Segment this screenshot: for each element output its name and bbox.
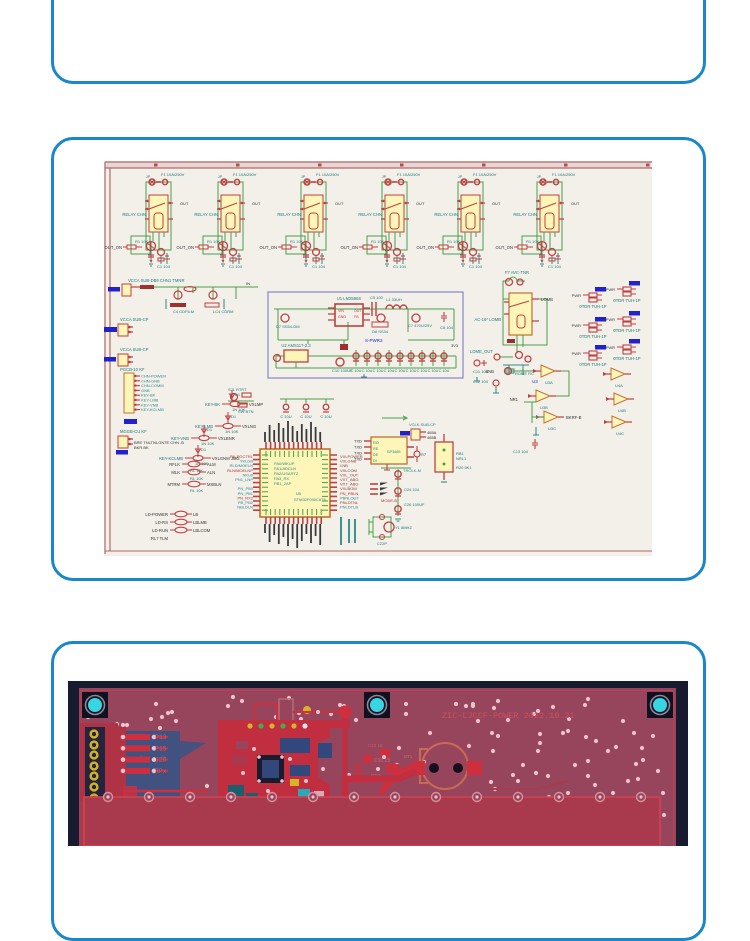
svg-text:U3A: U3A	[545, 380, 553, 385]
svg-text:F1 10A/250V: F1 10A/250V	[552, 172, 576, 177]
svg-text:F1 10A/250V: F1 10A/250V	[316, 172, 340, 177]
svg-text:VXLMP: VXLMP	[249, 402, 263, 407]
svg-text:VIN: VIN	[338, 309, 344, 313]
svg-text:R1 10K: R1 10K	[447, 239, 461, 244]
svg-text:BT1: BT1	[404, 754, 413, 759]
svg-text:PWR: PWR	[606, 345, 615, 350]
svg-text:U3B: U3B	[540, 405, 548, 410]
svg-text:JP: JP	[146, 174, 151, 179]
svg-text:OUT_ON: OUT_ON	[341, 245, 358, 250]
svg-text:C 10U: C 10U	[373, 369, 384, 373]
svg-text:RELAY CHN: RELAY CHN	[513, 212, 537, 217]
svg-text:C 10U: C 10U	[362, 369, 373, 373]
svg-text:TXD: TXD	[354, 445, 362, 450]
svg-text:U3: U3	[532, 379, 538, 384]
svg-text:ALN: ALN	[207, 470, 215, 475]
svg-text:OUT_ON: OUT_ON	[177, 245, 194, 250]
svg-text:NBLDLN: NBLDLN	[237, 505, 253, 510]
svg-text:LD-RS: LD-RS	[155, 520, 168, 525]
svg-text:C 10U: C 10U	[406, 369, 417, 373]
svg-text:LB: LB	[193, 512, 198, 517]
svg-text:JP: JP	[458, 174, 463, 179]
svg-text:TROLK-M: TROLK-M	[403, 468, 421, 473]
svg-text:RL7 TLM: RL7 TLM	[151, 536, 169, 541]
svg-text:C1 104: C1 104	[312, 264, 326, 269]
svg-text:JP: JP	[218, 174, 223, 179]
svg-text:R1 10K: R1 10K	[135, 239, 149, 244]
svg-text:PB1_2AP: PB1_2AP	[274, 481, 292, 486]
svg-text:VCCA SUB-CP: VCCA SUB-CP	[120, 317, 149, 322]
svg-text:AC-16* LOMB: AC-16* LOMB	[474, 317, 501, 322]
svg-text:C 10U: C 10U	[320, 414, 331, 419]
svg-text:C26 100UF: C26 100UF	[404, 502, 425, 507]
svg-text:C12 104: C12 104	[473, 379, 489, 384]
svg-text:PWR: PWR	[606, 317, 615, 322]
svg-text:OUT: OUT	[252, 201, 261, 206]
svg-text:PWR: PWR	[606, 287, 615, 292]
svg-text:OUT: OUT	[180, 201, 189, 206]
svg-text:C5 100: C5 100	[370, 295, 384, 300]
svg-text:U2 AMS117-3.3: U2 AMS117-3.3	[281, 343, 311, 348]
svg-text:D8 SS34: D8 SS34	[372, 329, 389, 334]
svg-text:RFLK: RFLK	[169, 462, 180, 467]
svg-text:485B: 485B	[427, 435, 437, 440]
svg-text:VCCA SUB-DB9 CHN1 TMNR: VCCA SUB-DB9 CHN1 TMNR	[128, 278, 184, 283]
svg-text:MXBLN: MXBLN	[207, 482, 221, 487]
svg-text:C 10U: C 10U	[417, 369, 428, 373]
svg-text:OUT_ON: OUT_ON	[105, 245, 122, 250]
svg-text:RELAY CHN: RELAY CHN	[122, 212, 146, 217]
svg-text:BKRF-B: BKRF-B	[566, 415, 582, 420]
svg-text:RELAY CHN: RELAY CHN	[277, 212, 301, 217]
svg-text:SNB: SNB	[485, 369, 494, 374]
svg-text:TXD: TXD	[354, 451, 362, 456]
svg-text:LOMB: LOMB	[541, 297, 553, 302]
svg-text:C1 104: C1 104	[393, 264, 407, 269]
svg-text:C 10U: C 10U	[439, 369, 450, 373]
svg-text:R1 10K: R1 10K	[371, 239, 385, 244]
svg-text:PWR: PWR	[572, 293, 581, 298]
svg-text:PWR: PWR	[572, 351, 581, 356]
svg-text:ZIC-LJCCF-POWER 2022.10.21: ZIC-LJCCF-POWER 2022.10.21	[442, 711, 575, 721]
svg-text:MLK: MLK	[171, 470, 180, 475]
svg-text:F1 10A/250V: F1 10A/250V	[397, 172, 421, 177]
svg-text:DE: DE	[373, 453, 379, 457]
svg-text:MODE-B: MODE-B	[381, 498, 397, 503]
svg-text:VCCA SUB-CP: VCCA SUB-CP	[120, 347, 149, 352]
svg-text:RELAY CHN: RELAY CHN	[358, 212, 382, 217]
svg-text:BKR.BK: BKR.BK	[134, 445, 149, 450]
svg-text:C8 104: C8 104	[440, 325, 454, 330]
svg-text:LC4 CDRM: LC4 CDRM	[213, 309, 233, 314]
svg-text:0TDR TUH-1P: 0TDR TUH-1P	[613, 356, 640, 361]
svg-text:ALM: ALM	[207, 462, 216, 467]
svg-text:ROME RC: ROME RC	[515, 371, 534, 376]
svg-text:C1 104: C1 104	[548, 264, 562, 269]
svg-text:D1: D1	[231, 414, 237, 419]
svg-text:C10 100UF: C10 100UF	[332, 368, 353, 373]
svg-text:U5: U5	[296, 491, 302, 496]
svg-text:VCLK SUB-CP: VCLK SUB-CP	[409, 422, 436, 427]
svg-text:C 10U: C 10U	[384, 369, 395, 373]
svg-text:C10 15: C10 15	[374, 758, 390, 764]
svg-text:KEY-BK: KEY-BK	[205, 402, 220, 407]
svg-text:D7 SS54-DM: D7 SS54-DM	[276, 324, 300, 329]
svg-text:RPx: RPx	[155, 768, 167, 775]
svg-text:R1 10K: R1 10K	[207, 239, 221, 244]
svg-text:JP: JP	[537, 174, 542, 179]
svg-text:U1 LM2596S: U1 LM2596S	[337, 296, 362, 301]
svg-text:VXLNG: VXLNG	[242, 424, 256, 429]
svg-text:C4 CDFILM: C4 CDFILM	[173, 309, 194, 314]
svg-text:STM32F030C8T6: STM32F030C8T6	[294, 497, 327, 502]
svg-text:SP3485: SP3485	[387, 450, 401, 454]
svg-text:KEY-VNB: KEY-VNB	[171, 436, 189, 441]
svg-text:OUT: OUT	[492, 201, 501, 206]
svg-text:0TDR TUH-1P: 0TDR TUH-1P	[579, 334, 606, 339]
svg-text:L1 33UH: L1 33UH	[386, 297, 402, 302]
svg-text:PGCB-10 KF: PGCB-10 KF	[120, 367, 145, 372]
svg-text:LD-RUN: LD-RUN	[152, 528, 168, 533]
svg-text:LD-POWER: LD-POWER	[145, 512, 168, 517]
svg-text:FB: FB	[354, 315, 359, 319]
svg-text:LBLCOM: LBLCOM	[193, 528, 211, 533]
svg-text:0TDR TUH-1P: 0TDR TUH-1P	[613, 298, 640, 303]
svg-text:OUT_ON: OUT_ON	[496, 245, 513, 250]
svg-text:MTRM: MTRM	[167, 482, 180, 487]
svg-text:D1: D1	[201, 447, 207, 452]
svg-text:1N 10K: 1N 10K	[232, 407, 246, 412]
svg-text:JP: JP	[382, 174, 387, 179]
svg-text:C7 470U/25V: C7 470U/25V	[408, 323, 432, 328]
svg-text:F1 10A/250V: F1 10A/250V	[473, 172, 497, 177]
svg-text:GND: GND	[338, 315, 346, 319]
svg-text:KEY-KCLMB: KEY-KCLMB	[141, 407, 164, 412]
svg-text:C 10U: C 10U	[300, 414, 311, 419]
svg-text:S-PWR3: S-PWR3	[365, 338, 383, 343]
svg-text:R1 10K: R1 10K	[526, 239, 540, 244]
svg-text:F7 AVC-TNR: F7 AVC-TNR	[505, 270, 529, 275]
svg-text:VXLGNM JMG: VXLGNM JMG	[212, 456, 240, 461]
svg-text:PN1_LNP: PN1_LNP	[235, 477, 253, 482]
svg-text:C22P: C22P	[377, 541, 387, 546]
svg-text:R7: R7	[421, 452, 427, 457]
svg-text:C1 104: C1 104	[229, 264, 243, 269]
svg-text:JP: JP	[301, 174, 306, 179]
svg-text:C 10U: C 10U	[280, 414, 291, 419]
svg-text:NRL1: NRL1	[456, 456, 467, 461]
svg-text:KEY-KCLMB: KEY-KCLMB	[159, 456, 183, 461]
svg-text:RO: RO	[373, 441, 379, 445]
svg-text:LOME_OUT: LOME_OUT	[470, 349, 493, 354]
svg-text:C13 104: C13 104	[513, 449, 529, 454]
svg-text:D1: D1	[207, 427, 213, 432]
svg-text:F1 10A/250V: F1 10A/250V	[233, 172, 257, 177]
svg-text:MGGB-CU KF: MGGB-CU KF	[120, 429, 147, 434]
svg-text:D1: D1	[235, 392, 241, 397]
svg-text:RELAY CHN: RELAY CHN	[434, 212, 458, 217]
svg-text:Y1 8MHZ: Y1 8MHZ	[395, 525, 412, 530]
svg-text:NR1: NR1	[510, 397, 519, 402]
svg-text:IN: IN	[246, 281, 250, 286]
svg-text:U4C: U4C	[616, 431, 624, 436]
svg-text:3V3: 3V3	[451, 343, 459, 348]
svg-text:C24 104: C24 104	[404, 487, 420, 492]
svg-text:RE: RE	[373, 447, 379, 451]
svg-text:J26: J26	[155, 757, 167, 764]
svg-text:R1 10K: R1 10K	[290, 239, 304, 244]
svg-text:PWR: PWR	[572, 323, 581, 328]
svg-text:RL 10K: RL 10K	[190, 476, 204, 481]
svg-text:0TDR TUH-1P: 0TDR TUH-1P	[579, 304, 606, 309]
svg-text:C10 15: C10 15	[368, 743, 383, 748]
svg-text:DI: DI	[373, 459, 377, 463]
svg-text:VXLBNR: VXLBNR	[218, 436, 235, 441]
svg-text:OUT_ON: OUT_ON	[260, 245, 277, 250]
svg-text:OUT_ON: OUT_ON	[417, 245, 434, 250]
svg-text:1N 10K: 1N 10K	[225, 429, 239, 434]
svg-text:OUT: OUT	[416, 201, 425, 206]
svg-text:PNLDTLB: PNLDTLB	[340, 505, 358, 510]
svg-text:P15: P15	[155, 745, 167, 752]
svg-text:LBLMB: LBLMB	[193, 520, 207, 525]
svg-text:RELAY CHN: RELAY CHN	[194, 212, 218, 217]
svg-text:OUT: OUT	[354, 309, 362, 313]
svg-text:C1 104: C1 104	[157, 264, 171, 269]
svg-text:P13: P13	[155, 734, 167, 741]
svg-text:C 10U: C 10U	[428, 369, 439, 373]
svg-text:0TDR TUH-1P: 0TDR TUH-1P	[579, 362, 606, 367]
svg-text:0TDR TUH-1P: 0TDR TUH-1P	[613, 328, 640, 333]
svg-text:TXD: TXD	[354, 439, 362, 444]
svg-text:U4B: U4B	[618, 408, 626, 413]
svg-text:U4A: U4A	[615, 383, 623, 388]
svg-text:C 10U: C 10U	[395, 369, 406, 373]
svg-text:TXD: TXD	[354, 457, 362, 462]
svg-text:OUT: OUT	[335, 201, 344, 206]
svg-text:R20 5K1: R20 5K1	[456, 465, 472, 470]
svg-text:F1 10A/250V: F1 10A/250V	[161, 172, 185, 177]
svg-text:OUT: OUT	[571, 201, 580, 206]
svg-text:RL 10K: RL 10K	[190, 488, 204, 493]
svg-text:C1 104: C1 104	[469, 264, 483, 269]
svg-text:1N 10K: 1N 10K	[201, 441, 215, 446]
svg-text:U3C: U3C	[548, 426, 556, 431]
